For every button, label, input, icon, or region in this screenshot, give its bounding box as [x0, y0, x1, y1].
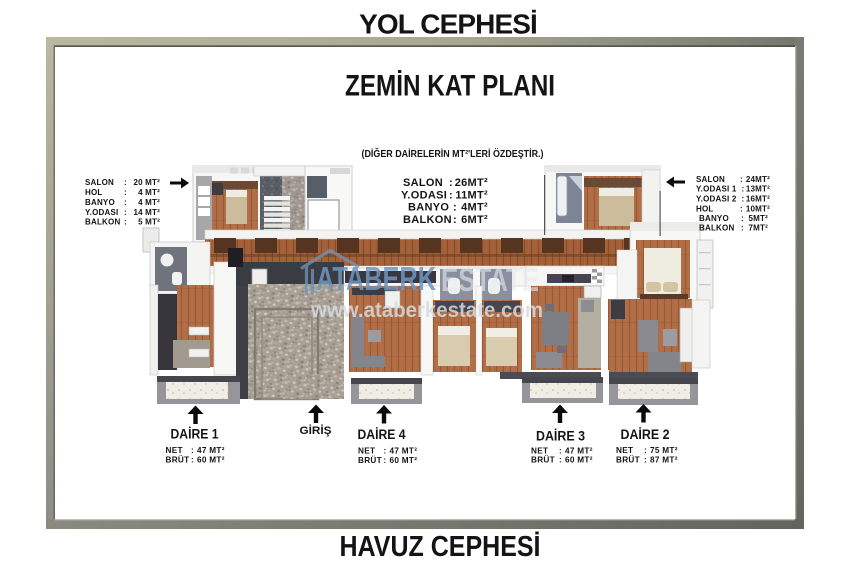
svg-text:11MT²: 11MT²	[455, 189, 488, 201]
svg-text::: :	[742, 185, 745, 194]
svg-text:87 MT²: 87 MT²	[650, 455, 678, 464]
svg-text::: :	[191, 446, 194, 455]
svg-text:SALON: SALON	[403, 177, 443, 189]
svg-text:Y.ODASI: Y.ODASI	[85, 208, 118, 217]
svg-text:GİRİŞ: GİRİŞ	[300, 424, 332, 437]
svg-text::: :	[453, 201, 457, 213]
svg-text:60 MT²: 60 MT²	[197, 456, 225, 465]
svg-text:HOL: HOL	[85, 188, 103, 197]
svg-text:BANYO: BANYO	[699, 214, 729, 223]
svg-text::: :	[741, 214, 744, 223]
svg-text:Y.ODASI 1: Y.ODASI 1	[696, 185, 737, 194]
svg-text::: :	[124, 188, 127, 197]
svg-text:47 MT²: 47 MT²	[565, 447, 593, 456]
svg-text:BALKON: BALKON	[85, 218, 120, 227]
svg-text:www.ataberkestate.com: www.ataberkestate.com	[310, 299, 543, 322]
svg-text:SALON: SALON	[85, 178, 114, 187]
svg-text::: :	[124, 178, 127, 187]
svg-text:DAİRE 2: DAİRE 2	[621, 427, 670, 442]
svg-text:47 MT²: 47 MT²	[390, 447, 418, 456]
svg-text:13MT²: 13MT²	[746, 185, 770, 194]
svg-text:DAİRE 4: DAİRE 4	[358, 427, 406, 442]
svg-text:BRÜT: BRÜT	[616, 454, 640, 464]
svg-text:NET: NET	[358, 447, 375, 456]
svg-text::: :	[742, 194, 745, 203]
svg-text::: :	[559, 456, 562, 465]
svg-text:BRÜT: BRÜT	[531, 455, 555, 465]
svg-text:20 MT²: 20 MT²	[133, 178, 160, 187]
svg-text:BRÜT: BRÜT	[358, 455, 382, 465]
svg-text:BANYO: BANYO	[85, 198, 115, 207]
svg-text:NET: NET	[616, 446, 633, 455]
svg-text:5 MT²: 5 MT²	[138, 218, 160, 227]
svg-text:ESTATE: ESTATE	[441, 261, 539, 298]
svg-text:4 MT²: 4 MT²	[138, 198, 160, 207]
svg-text::: :	[191, 456, 194, 465]
svg-text::: :	[124, 218, 127, 227]
svg-text::: :	[124, 198, 127, 207]
svg-text:NET: NET	[166, 446, 183, 455]
svg-text:14 MT²: 14 MT²	[133, 208, 160, 217]
svg-text:ZEMİN KAT PLANI: ZEMİN KAT PLANI	[345, 70, 555, 103]
svg-text:HAVUZ CEPHESİ: HAVUZ CEPHESİ	[340, 531, 541, 563]
svg-text:YOL CEPHESİ: YOL CEPHESİ	[359, 9, 537, 40]
svg-text:BALKON: BALKON	[699, 224, 734, 233]
svg-text:5MT²: 5MT²	[749, 214, 769, 223]
svg-text:BRÜT: BRÜT	[166, 455, 190, 465]
svg-text:Y.ODASI: Y.ODASI	[401, 189, 447, 201]
svg-text:47 MT²: 47 MT²	[197, 446, 225, 455]
svg-text::: :	[740, 204, 743, 213]
svg-text:NET: NET	[531, 447, 548, 456]
svg-text:16MT²: 16MT²	[746, 194, 770, 203]
svg-text::: :	[124, 208, 127, 217]
svg-text:ATABERK: ATABERK	[316, 260, 436, 297]
svg-text:60 MT²: 60 MT²	[390, 456, 418, 465]
svg-text::: :	[384, 447, 387, 456]
svg-text:7MT²: 7MT²	[749, 224, 769, 233]
svg-text:24MT²: 24MT²	[746, 175, 770, 184]
svg-text:DAİRE 1: DAİRE 1	[171, 427, 219, 442]
svg-text:Y.ODASI 2: Y.ODASI 2	[696, 194, 737, 203]
svg-text::: :	[644, 455, 647, 464]
svg-text:DAİRE 3: DAİRE 3	[536, 429, 585, 444]
svg-text:4 MT²: 4 MT²	[138, 188, 160, 197]
svg-text::: :	[644, 446, 647, 455]
svg-text::: :	[453, 214, 457, 226]
svg-text:(DİĞER DAİRELERİN MT²'LERİ ÖZD: (DİĞER DAİRELERİN MT²'LERİ ÖZDEŞTİR.)	[362, 147, 544, 160]
svg-text::: :	[449, 177, 453, 189]
svg-text::: :	[559, 447, 562, 456]
svg-text:6MT²: 6MT²	[461, 214, 488, 226]
svg-text:60 MT²: 60 MT²	[565, 456, 593, 465]
svg-text:SALON: SALON	[696, 175, 725, 184]
svg-text::: :	[740, 175, 743, 184]
svg-text:26MT²: 26MT²	[455, 177, 488, 189]
svg-text:BANYO: BANYO	[408, 201, 449, 213]
svg-text:10MT²: 10MT²	[746, 204, 770, 213]
svg-text:HOL: HOL	[696, 204, 714, 213]
svg-text:BALKON: BALKON	[403, 214, 452, 226]
svg-text::: :	[384, 456, 387, 465]
svg-text::: :	[449, 189, 453, 201]
svg-text::: :	[741, 224, 744, 233]
svg-text:75 MT²: 75 MT²	[650, 446, 678, 455]
svg-text:4MT²: 4MT²	[461, 201, 488, 213]
